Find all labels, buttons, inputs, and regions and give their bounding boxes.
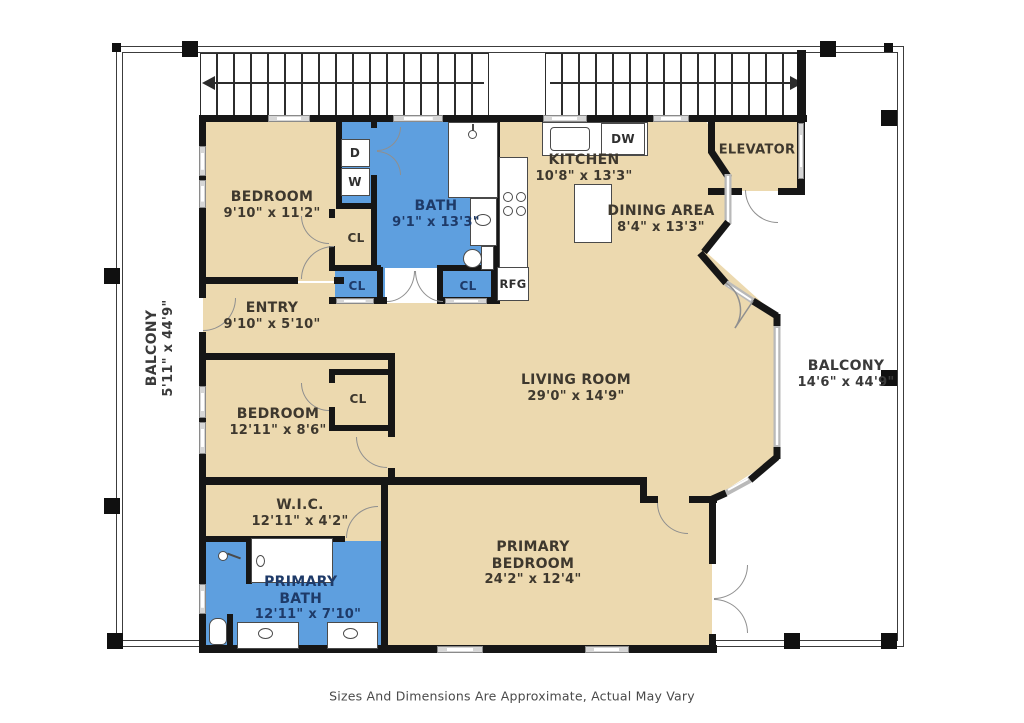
room-label-primary-bedroom: PRIMARY BEDROOM 24'2" x 12'4" bbox=[478, 539, 588, 587]
room-name: BALCONY bbox=[144, 299, 161, 396]
kitchen-island bbox=[574, 184, 612, 243]
closet-text: CL bbox=[348, 279, 365, 293]
closet-label: CL bbox=[349, 392, 366, 406]
room-label-dining-area: DINING AREA 8'4" x 13'3" bbox=[607, 203, 714, 235]
room-dims: 10'8" x 13'3" bbox=[535, 169, 632, 184]
toilet-tank bbox=[481, 246, 494, 270]
wall bbox=[797, 50, 806, 118]
disclaimer-text: Sizes And Dimensions Are Approximate, Ac… bbox=[329, 689, 695, 704]
window bbox=[199, 180, 206, 208]
dryer-text: D bbox=[350, 146, 360, 160]
closet-text: CL bbox=[349, 392, 366, 406]
stove-burner bbox=[516, 192, 526, 202]
railing-post bbox=[784, 633, 800, 649]
staircase-right bbox=[545, 53, 805, 116]
room-name: BEDROOM bbox=[223, 189, 320, 206]
room-label-living-room: LIVING ROOM 29'0" x 14'9" bbox=[521, 372, 631, 404]
toilet-bowl bbox=[209, 618, 227, 645]
room-label-wic: W.I.C. 12'11" x 4'2" bbox=[251, 497, 348, 529]
closet-label: CL bbox=[459, 279, 476, 293]
railing-post bbox=[104, 498, 120, 514]
closet-slider-door bbox=[445, 298, 487, 304]
closet-text: CL bbox=[347, 231, 364, 245]
railing-post bbox=[881, 633, 897, 649]
stove-burner bbox=[503, 206, 513, 216]
railing-post bbox=[881, 110, 897, 126]
railing-post bbox=[104, 268, 120, 284]
window bbox=[543, 115, 587, 122]
stair-direction-line bbox=[206, 82, 484, 84]
window bbox=[437, 646, 483, 653]
window bbox=[585, 646, 629, 653]
wall bbox=[640, 496, 658, 503]
railing-post bbox=[884, 43, 893, 52]
room-label-kitchen: KITCHEN 10'8" x 13'3" bbox=[535, 152, 632, 184]
room-label-bedroom-top: BEDROOM 9'10" x 11'2" bbox=[223, 189, 320, 221]
room-dims: 9'10" x 11'2" bbox=[223, 206, 320, 221]
window bbox=[653, 115, 689, 122]
wall bbox=[227, 614, 233, 653]
room-dims: 24'2" x 12'4" bbox=[478, 572, 588, 587]
wall bbox=[199, 277, 298, 284]
kitchen-sink bbox=[550, 127, 590, 151]
room-label-balcony-left: BALCONY 5'11" x 44'9" bbox=[144, 299, 176, 396]
room-name: PRIMARY BEDROOM bbox=[478, 539, 588, 572]
dishwasher-label: DW bbox=[611, 132, 635, 146]
room-dims: 8'4" x 13'3" bbox=[607, 220, 714, 235]
pbath-sink bbox=[343, 628, 358, 639]
window bbox=[199, 146, 206, 176]
window bbox=[199, 386, 206, 418]
room-dims: 5'11" x 44'9" bbox=[161, 299, 176, 396]
wall bbox=[199, 477, 647, 485]
wall bbox=[336, 203, 377, 209]
closet-slider-door bbox=[336, 298, 374, 304]
stair-arrow-left-icon bbox=[202, 76, 215, 90]
wall bbox=[334, 277, 344, 284]
room-label-entry: ENTRY 9'10" x 5'10" bbox=[223, 300, 320, 332]
washer-text: W bbox=[348, 175, 362, 189]
refrigerator-label: RFG bbox=[499, 278, 526, 292]
room-dims: 9'1" x 13'3" bbox=[392, 215, 480, 230]
room-dims: 12'11" x 7'10" bbox=[255, 607, 361, 622]
room-name: ELEVATOR bbox=[719, 142, 796, 157]
bay-walls bbox=[690, 110, 790, 510]
room-name: KITCHEN bbox=[535, 152, 632, 169]
room-label-primary-bath: PRIMARY BATH 12'11" x 7'10" bbox=[255, 574, 361, 622]
window bbox=[199, 422, 206, 454]
wall bbox=[329, 425, 391, 431]
wall bbox=[329, 369, 335, 383]
stove-burner bbox=[516, 206, 526, 216]
room-dims: 14'6" x 44'9" bbox=[797, 375, 894, 390]
room-label-elevator: ELEVATOR bbox=[719, 142, 796, 157]
room-label-bedroom-middle: BEDROOM 12'11" x 8'6" bbox=[229, 406, 326, 438]
railing-post bbox=[182, 41, 198, 57]
shower-head-icon bbox=[468, 130, 477, 139]
room-dims: 9'10" x 5'10" bbox=[223, 317, 320, 332]
wall bbox=[329, 369, 391, 375]
railing-post bbox=[820, 41, 836, 57]
railing-post bbox=[107, 633, 123, 649]
wall bbox=[709, 634, 716, 653]
toilet-bowl bbox=[463, 249, 482, 268]
room-dims: 29'0" x 14'9" bbox=[521, 389, 631, 404]
window bbox=[199, 584, 206, 614]
railing-post bbox=[112, 43, 121, 52]
room-label-bath: BATH 9'1" x 13'3" bbox=[392, 198, 480, 230]
room-name: BEDROOM bbox=[229, 406, 326, 423]
staircase-left bbox=[200, 53, 489, 116]
room-name: LIVING ROOM bbox=[521, 372, 631, 389]
dishwasher-text: DW bbox=[611, 132, 635, 146]
stair-direction-line bbox=[550, 82, 796, 84]
closet-label: CL bbox=[347, 231, 364, 245]
stove-burner bbox=[503, 192, 513, 202]
closet-label: CL bbox=[348, 279, 365, 293]
room-name: BATH bbox=[392, 198, 480, 215]
room-name: PRIMARY BATH bbox=[255, 574, 347, 607]
window bbox=[268, 115, 310, 122]
room-label-balcony-right: BALCONY 14'6" x 44'9" bbox=[797, 358, 894, 390]
room-dims: 12'11" x 8'6" bbox=[229, 423, 326, 438]
wall bbox=[381, 477, 388, 653]
wall bbox=[329, 209, 335, 218]
room-name: W.I.C. bbox=[251, 497, 348, 514]
room-name: BALCONY bbox=[797, 358, 894, 375]
refrigerator-text: RFG bbox=[499, 277, 526, 291]
window bbox=[393, 115, 443, 122]
wall bbox=[199, 353, 395, 360]
floor-plan: BEDROOM 9'10" x 11'2" BATH 9'1" x 13'3" … bbox=[0, 0, 1024, 723]
dryer-label: D bbox=[350, 146, 360, 160]
room-name: DINING AREA bbox=[607, 203, 714, 220]
washer-label: W bbox=[348, 175, 362, 189]
window bbox=[798, 123, 804, 179]
room-name: ENTRY bbox=[223, 300, 320, 317]
tub-faucet-icon bbox=[256, 555, 265, 567]
shower-arm-icon bbox=[472, 124, 474, 131]
room-dims: 12'11" x 4'2" bbox=[251, 514, 348, 529]
wall bbox=[371, 175, 377, 271]
closet-text: CL bbox=[459, 279, 476, 293]
pbath-sink bbox=[258, 628, 273, 639]
wall bbox=[377, 267, 383, 304]
